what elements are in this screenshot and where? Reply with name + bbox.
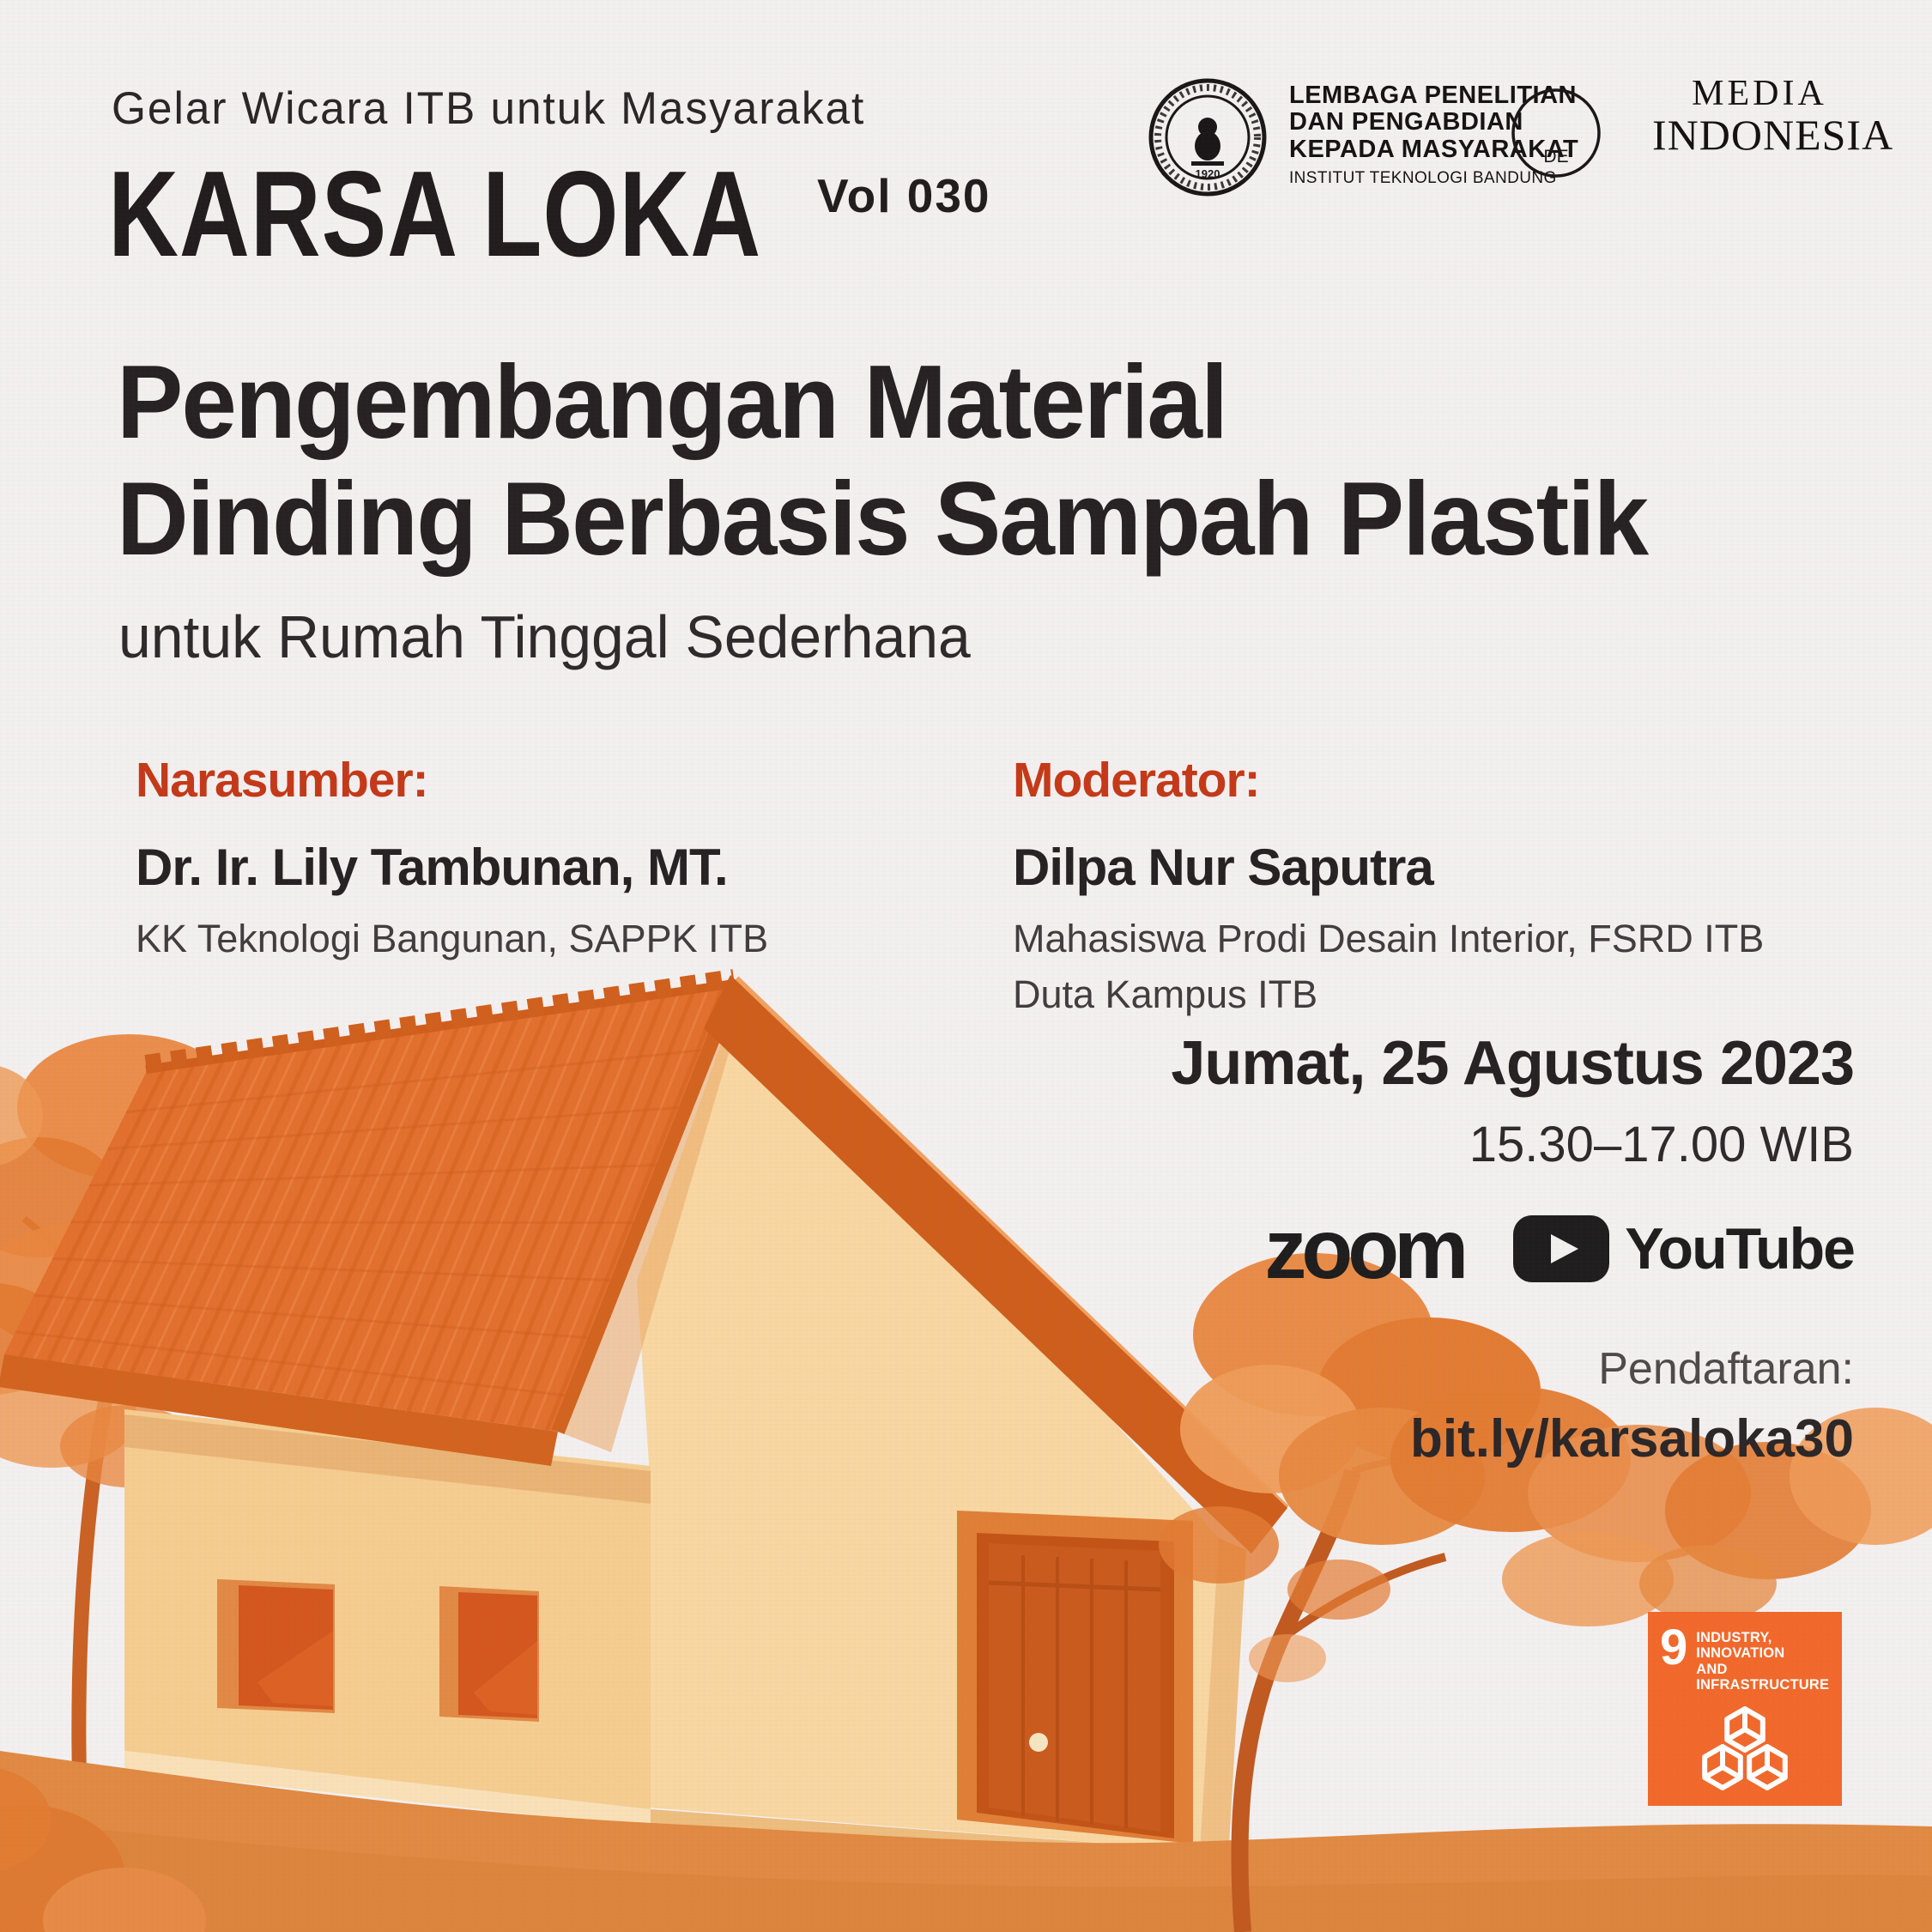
- sdg9-label: INDUSTRY, INNOVATION AND INFRASTRUCTURE: [1696, 1626, 1830, 1693]
- platforms-row: zoom YouTube: [996, 1211, 1854, 1287]
- itb-seal-year: 1920: [1196, 167, 1220, 180]
- zoom-logo: zoom: [1264, 1211, 1463, 1287]
- sdg9-cubes-icon: [1681, 1702, 1809, 1807]
- moderator-affiliation: Mahasiswa Prodi Desain Interior, FSRD IT…: [1013, 911, 1764, 1023]
- speaker-block: Narasumber: Dr. Ir. Lily Tambunan, MT. K…: [136, 752, 768, 966]
- moderator-name: Dilpa Nur Saputra: [1013, 838, 1764, 897]
- sdg9-label-line1: INDUSTRY, INNOVATION: [1696, 1630, 1830, 1662]
- speaker-affiliation: KK Teknologi Bangunan, SAPPK ITB: [136, 911, 768, 966]
- poster-root: Gelar Wicara ITB untuk Masyarakat KARSA …: [0, 0, 1932, 1932]
- event-series: Gelar Wicara ITB untuk Masyarakat: [112, 82, 865, 135]
- title-subtitle: untuk Rumah Tinggal Sederhana: [118, 603, 971, 671]
- moderator-affiliation-1: Mahasiswa Prodi Desain Interior, FSRD IT…: [1013, 911, 1764, 966]
- de-circle-logo: DE: [1509, 86, 1603, 180]
- volume-label: Vol 030: [817, 168, 991, 223]
- media-indonesia-logo: MEDIA INDONESIA: [1652, 76, 1867, 156]
- moderator-affiliation-2: Duta Kampus ITB: [1013, 966, 1764, 1022]
- sdg9-badge: 9 INDUSTRY, INNOVATION AND INFRASTRUCTUR…: [1648, 1612, 1842, 1806]
- youtube-label: YouTube: [1625, 1215, 1854, 1282]
- media-indonesia-line1: MEDIA: [1652, 76, 1867, 112]
- event-info-column: Jumat, 25 Agustus 2023 15.30–17.00 WIB z…: [996, 1028, 1854, 1469]
- youtube-logo: YouTube: [1513, 1215, 1854, 1282]
- itb-seal-logo: 1920: [1144, 74, 1271, 201]
- media-indonesia-line2: INDONESIA: [1652, 113, 1867, 156]
- event-time: 15.30–17.00 WIB: [996, 1116, 1854, 1173]
- karsa-loka-logotype: KARSA LOKA: [108, 144, 761, 285]
- registration-link[interactable]: bit.ly/karsaloka30: [996, 1408, 1854, 1469]
- title-line-2: Dinding Berbasis Sampah Plastik: [117, 458, 1647, 578]
- speaker-heading: Narasumber:: [136, 752, 768, 809]
- registration-label: Pendaftaran:: [996, 1343, 1854, 1395]
- youtube-play-icon: [1513, 1215, 1609, 1282]
- sdg9-number: 9: [1660, 1626, 1687, 1669]
- de-monogram: DE: [1543, 147, 1568, 167]
- speaker-name: Dr. Ir. Lily Tambunan, MT.: [136, 838, 768, 897]
- sdg9-label-line2: AND INFRASTRUCTURE: [1696, 1662, 1830, 1693]
- title-line-1: Pengembangan Material: [117, 342, 1226, 462]
- moderator-heading: Moderator:: [1013, 752, 1764, 809]
- event-date: Jumat, 25 Agustus 2023: [996, 1028, 1854, 1099]
- moderator-block: Moderator: Dilpa Nur Saputra Mahasiswa P…: [1013, 752, 1764, 1023]
